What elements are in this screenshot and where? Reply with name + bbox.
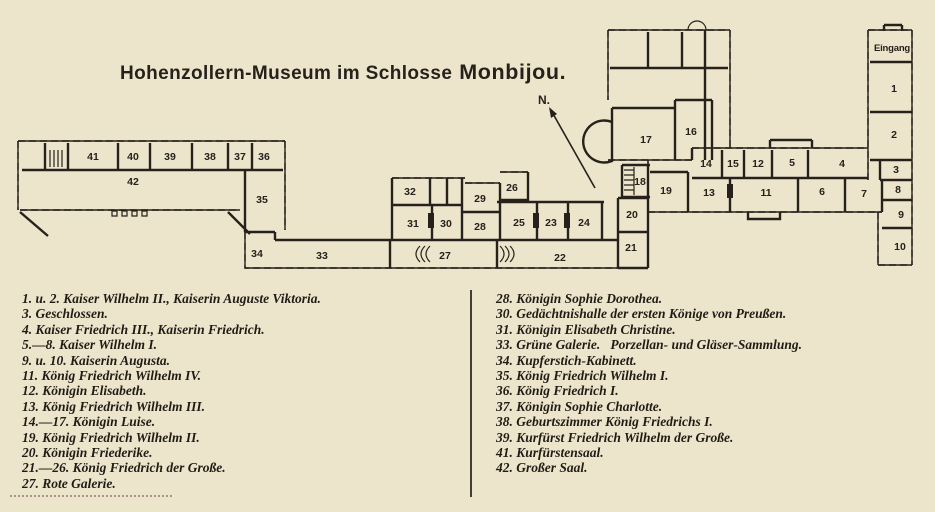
legend-divider (470, 290, 472, 497)
room-label-13: 13 (703, 187, 715, 199)
legend-item: 30. Gedächtnishalle der ersten Könige vo… (496, 306, 802, 321)
exterior-walls-hatch (18, 30, 912, 268)
room-label-4: 4 (839, 158, 845, 170)
room-label-1: 1 (891, 83, 897, 95)
room-label-36: 36 (258, 151, 270, 163)
north-label: N. (538, 93, 550, 107)
north-arrow-icon: N. (538, 93, 595, 188)
legend-item: 19. König Friedrich Wilhelm II. (22, 430, 321, 445)
legend-item: 38. Geburtszimmer König Friedrichs I. (496, 414, 802, 429)
room-label-37: 37 (234, 151, 246, 163)
entrance-label: Eingang (874, 43, 910, 54)
exterior-walls-base (18, 30, 912, 268)
room-label-30: 30 (440, 218, 452, 230)
room-label-41: 41 (87, 151, 99, 163)
interior-walls (20, 25, 912, 268)
room-label-28: 28 (474, 221, 486, 233)
room-label-18: 18 (634, 176, 646, 188)
room-label-27: 27 (439, 250, 451, 262)
legend-item: 27. Rote Galerie. (22, 476, 321, 491)
legend-item: 12. Königin Elisabeth. (22, 383, 321, 398)
room-label-42: 42 (127, 176, 139, 188)
room-label-3: 3 (893, 164, 899, 176)
room-label-12: 12 (752, 158, 764, 170)
legend-item: 21.—26. König Friedrich der Große. (22, 460, 321, 475)
room-label-23: 23 (545, 217, 557, 229)
legend-item: 31. Königin Elisabeth Christine. (496, 322, 802, 337)
legend-item: 34. Kupferstich-Kabinett. (496, 353, 802, 368)
room-label-31: 31 (407, 218, 419, 230)
legend-item: 39. Kurfürst Friedrich Wilhelm der Große… (496, 430, 802, 445)
legend-item: 36. König Friedrich I. (496, 383, 802, 398)
legend-item: 3. Geschlossen. (22, 306, 321, 321)
legend-item: 33. Grüne Galerie. Porzellan- und Gläser… (496, 337, 802, 352)
room-label-2: 2 (891, 129, 897, 141)
room-label-15: 15 (727, 158, 739, 170)
legend-item: 1. u. 2. Kaiser Wilhelm II., Kaiserin Au… (22, 291, 321, 306)
legend-item: 13. König Friedrich Wilhelm III. (22, 399, 321, 414)
room-label-21: 21 (625, 242, 637, 254)
room-label-7: 7 (861, 188, 867, 200)
room-label-8: 8 (895, 184, 901, 196)
room-label-34: 34 (251, 248, 263, 260)
room-label-16: 16 (685, 126, 697, 138)
room-label-29: 29 (474, 193, 486, 205)
room-label-17: 17 (640, 134, 652, 146)
room-label-5: 5 (789, 157, 795, 169)
room-label-24: 24 (578, 217, 590, 229)
legend-item: 28. Königin Sophie Dorothea. (496, 291, 802, 306)
room-label-10: 10 (894, 241, 906, 253)
document-page: Hohenzollern-Museum im SchlosseMonbijou.… (0, 0, 935, 512)
room-label-25: 25 (513, 217, 525, 229)
scan-artifact (10, 495, 172, 497)
room-label-39: 39 (164, 151, 176, 163)
legend-item: 5.—8. Kaiser Wilhelm I. (22, 337, 321, 352)
legend-item: 14.—17. Königin Luise. (22, 414, 321, 429)
room-label-38: 38 (204, 151, 216, 163)
legend-item: 37. Königin Sophie Charlotte. (496, 399, 802, 414)
room-label-11: 11 (760, 187, 771, 199)
legend-left-column: 1. u. 2. Kaiser Wilhelm II., Kaiserin Au… (22, 291, 321, 491)
room-label-19: 19 (660, 185, 672, 197)
legend-item: 41. Kurfürstensaal. (496, 445, 802, 460)
room-labels: 4140393837364235343332313029282627252324… (87, 83, 906, 264)
room-label-20: 20 (626, 209, 638, 221)
room-label-6: 6 (819, 186, 825, 198)
room-label-33: 33 (316, 250, 328, 262)
legend-item: 11. König Friedrich Wilhelm IV. (22, 368, 321, 383)
room-label-32: 32 (404, 186, 416, 198)
legend-right-column: 28. Königin Sophie Dorothea.30. Gedächtn… (496, 291, 802, 476)
legend-item: 9. u. 10. Kaiserin Augusta. (22, 353, 321, 368)
floor-plan: N. Eingang 41403938373642353433323130292… (0, 0, 935, 290)
room-label-26: 26 (506, 182, 518, 194)
legend-item: 42. Großer Saal. (496, 460, 802, 475)
legend-item: 35. König Friedrich Wilhelm I. (496, 368, 802, 383)
room-label-22: 22 (554, 252, 566, 264)
room-label-40: 40 (127, 151, 139, 163)
legend-item: 4. Kaiser Friedrich III., Kaiserin Fried… (22, 322, 321, 337)
room-label-35: 35 (256, 194, 268, 206)
room-label-9: 9 (898, 209, 904, 221)
room-label-14: 14 (700, 158, 712, 170)
legend-item: 20. Königin Friederike. (22, 445, 321, 460)
